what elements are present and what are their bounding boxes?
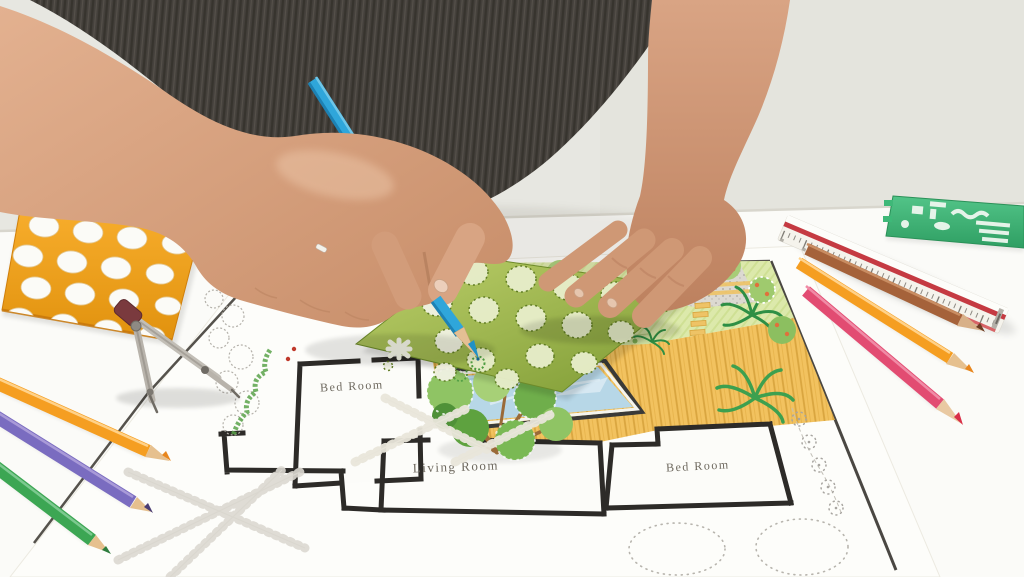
scene-canvas: Bed Room Living Room Bed Room Pool	[0, 0, 1024, 577]
compass-hinge	[131, 321, 141, 331]
scene-photo: Bed Room Living Room Bed Room Pool	[0, 0, 1024, 577]
